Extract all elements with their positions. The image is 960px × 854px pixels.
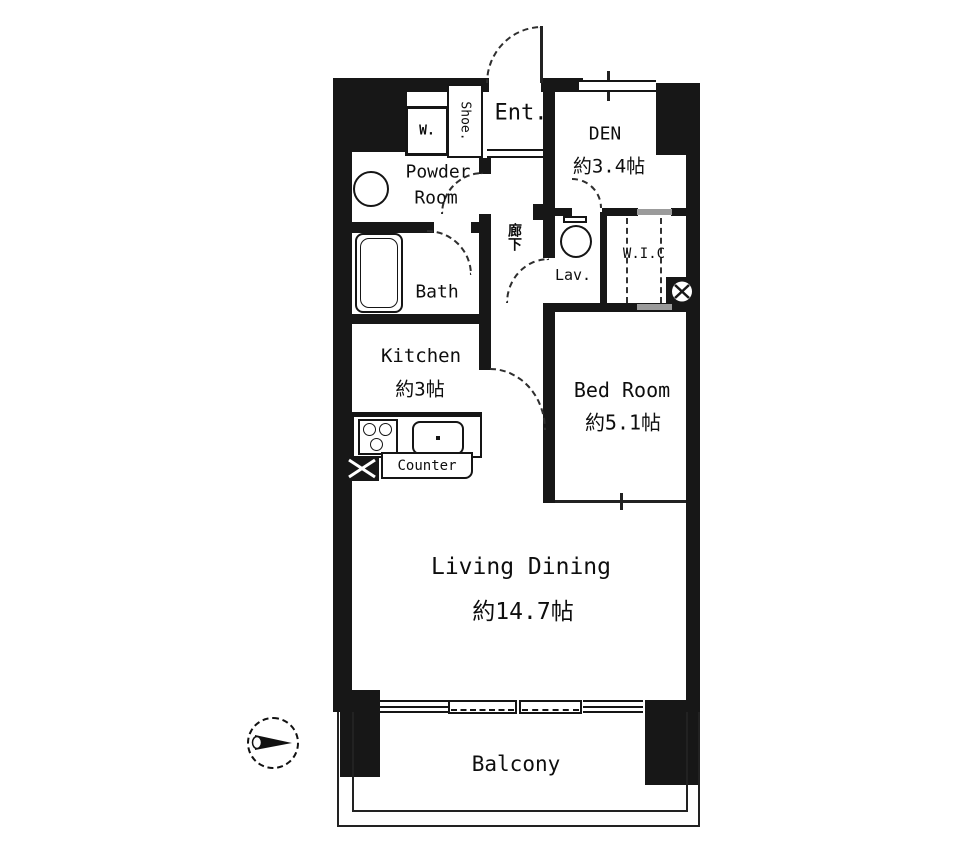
compass-icon — [247, 717, 299, 769]
bathtub-inner-line — [360, 238, 398, 308]
wall-den-bottom-b — [602, 208, 638, 216]
bedroom-partition-tick — [620, 493, 623, 510]
wall-pillar-top-right — [656, 83, 700, 155]
living-dining-area-label: 約14.7帖 — [472, 592, 573, 626]
sliding-door-hatch — [522, 709, 579, 711]
powder-room-label-line1: Powder — [405, 162, 470, 183]
stove-burner — [363, 423, 376, 436]
powder-room-label-line2: Room — [414, 188, 457, 209]
window-mid-line — [583, 706, 643, 708]
entrance-door-leaf — [540, 26, 543, 83]
den-window — [579, 80, 656, 92]
toilet-tank-icon — [563, 216, 587, 223]
stove-burner — [370, 438, 383, 451]
bedroom-area-label: 約5.1帖 — [585, 407, 661, 436]
wall-right — [686, 150, 700, 706]
wall-left — [333, 78, 352, 712]
sink-icon — [412, 421, 464, 455]
wall-ent-den — [543, 78, 555, 208]
window-mid-line — [380, 706, 448, 708]
floor-plan: Shoe. W. Counter — [0, 0, 960, 854]
stove-icon — [358, 419, 398, 455]
wall-bath-kitchen — [352, 314, 481, 324]
washer-label: W. — [419, 124, 435, 139]
balcony-label: Balcony — [472, 752, 561, 776]
den-label: DEN — [589, 124, 622, 145]
living-door-arc — [490, 368, 546, 430]
stove-burner — [379, 423, 392, 436]
bath-label: Bath — [415, 282, 458, 303]
sink-drain-dot — [436, 436, 440, 440]
sliding-door-hatch — [451, 709, 514, 711]
toilet-bowl-icon — [560, 225, 592, 258]
bath-door-arc — [427, 230, 472, 275]
counter-label: Counter — [397, 458, 456, 474]
entrance-door-arc — [486, 26, 542, 83]
wic-label: W.I.C — [623, 246, 665, 262]
wall-lav-wic-divider — [600, 212, 607, 307]
kitchen-area-label: 約3帖 — [395, 375, 444, 402]
counter-label-box: Counter — [381, 452, 473, 479]
meter-circle-x-icon — [666, 277, 698, 306]
wall-den-bottom-c — [671, 208, 686, 216]
bathtub-icon — [355, 233, 403, 313]
wic-sliding-door-bottom — [637, 304, 672, 310]
wall-powder-bath — [352, 222, 434, 233]
shaft-xbox-icon — [345, 456, 379, 481]
wic-sliding-door-top — [637, 209, 672, 215]
bedroom-label: Bed Room — [574, 378, 670, 402]
wall-den-bottom-a — [543, 208, 572, 216]
wall-corridor-right-lower — [543, 303, 555, 503]
corridor-label: 廊下 — [504, 223, 524, 251]
den-area-label: 約3.4帖 — [573, 152, 645, 179]
lavatory-door-arc — [506, 258, 549, 303]
shoe-cabinet: Shoe. — [447, 84, 483, 158]
wall-corridor-left — [479, 214, 491, 370]
shoe-cabinet-label: Shoe. — [458, 101, 473, 140]
den-door-arc — [572, 178, 602, 208]
compass-arrow — [249, 719, 296, 766]
lavatory-label: Lav. — [555, 266, 591, 284]
entrance-label: Ent. — [495, 101, 548, 126]
washer-box: W. — [405, 106, 449, 156]
living-dining-label: Living Dining — [431, 554, 611, 580]
entrance-step-line — [487, 149, 543, 158]
kitchen-label: Kitchen — [381, 345, 461, 367]
basin-icon — [353, 171, 389, 207]
